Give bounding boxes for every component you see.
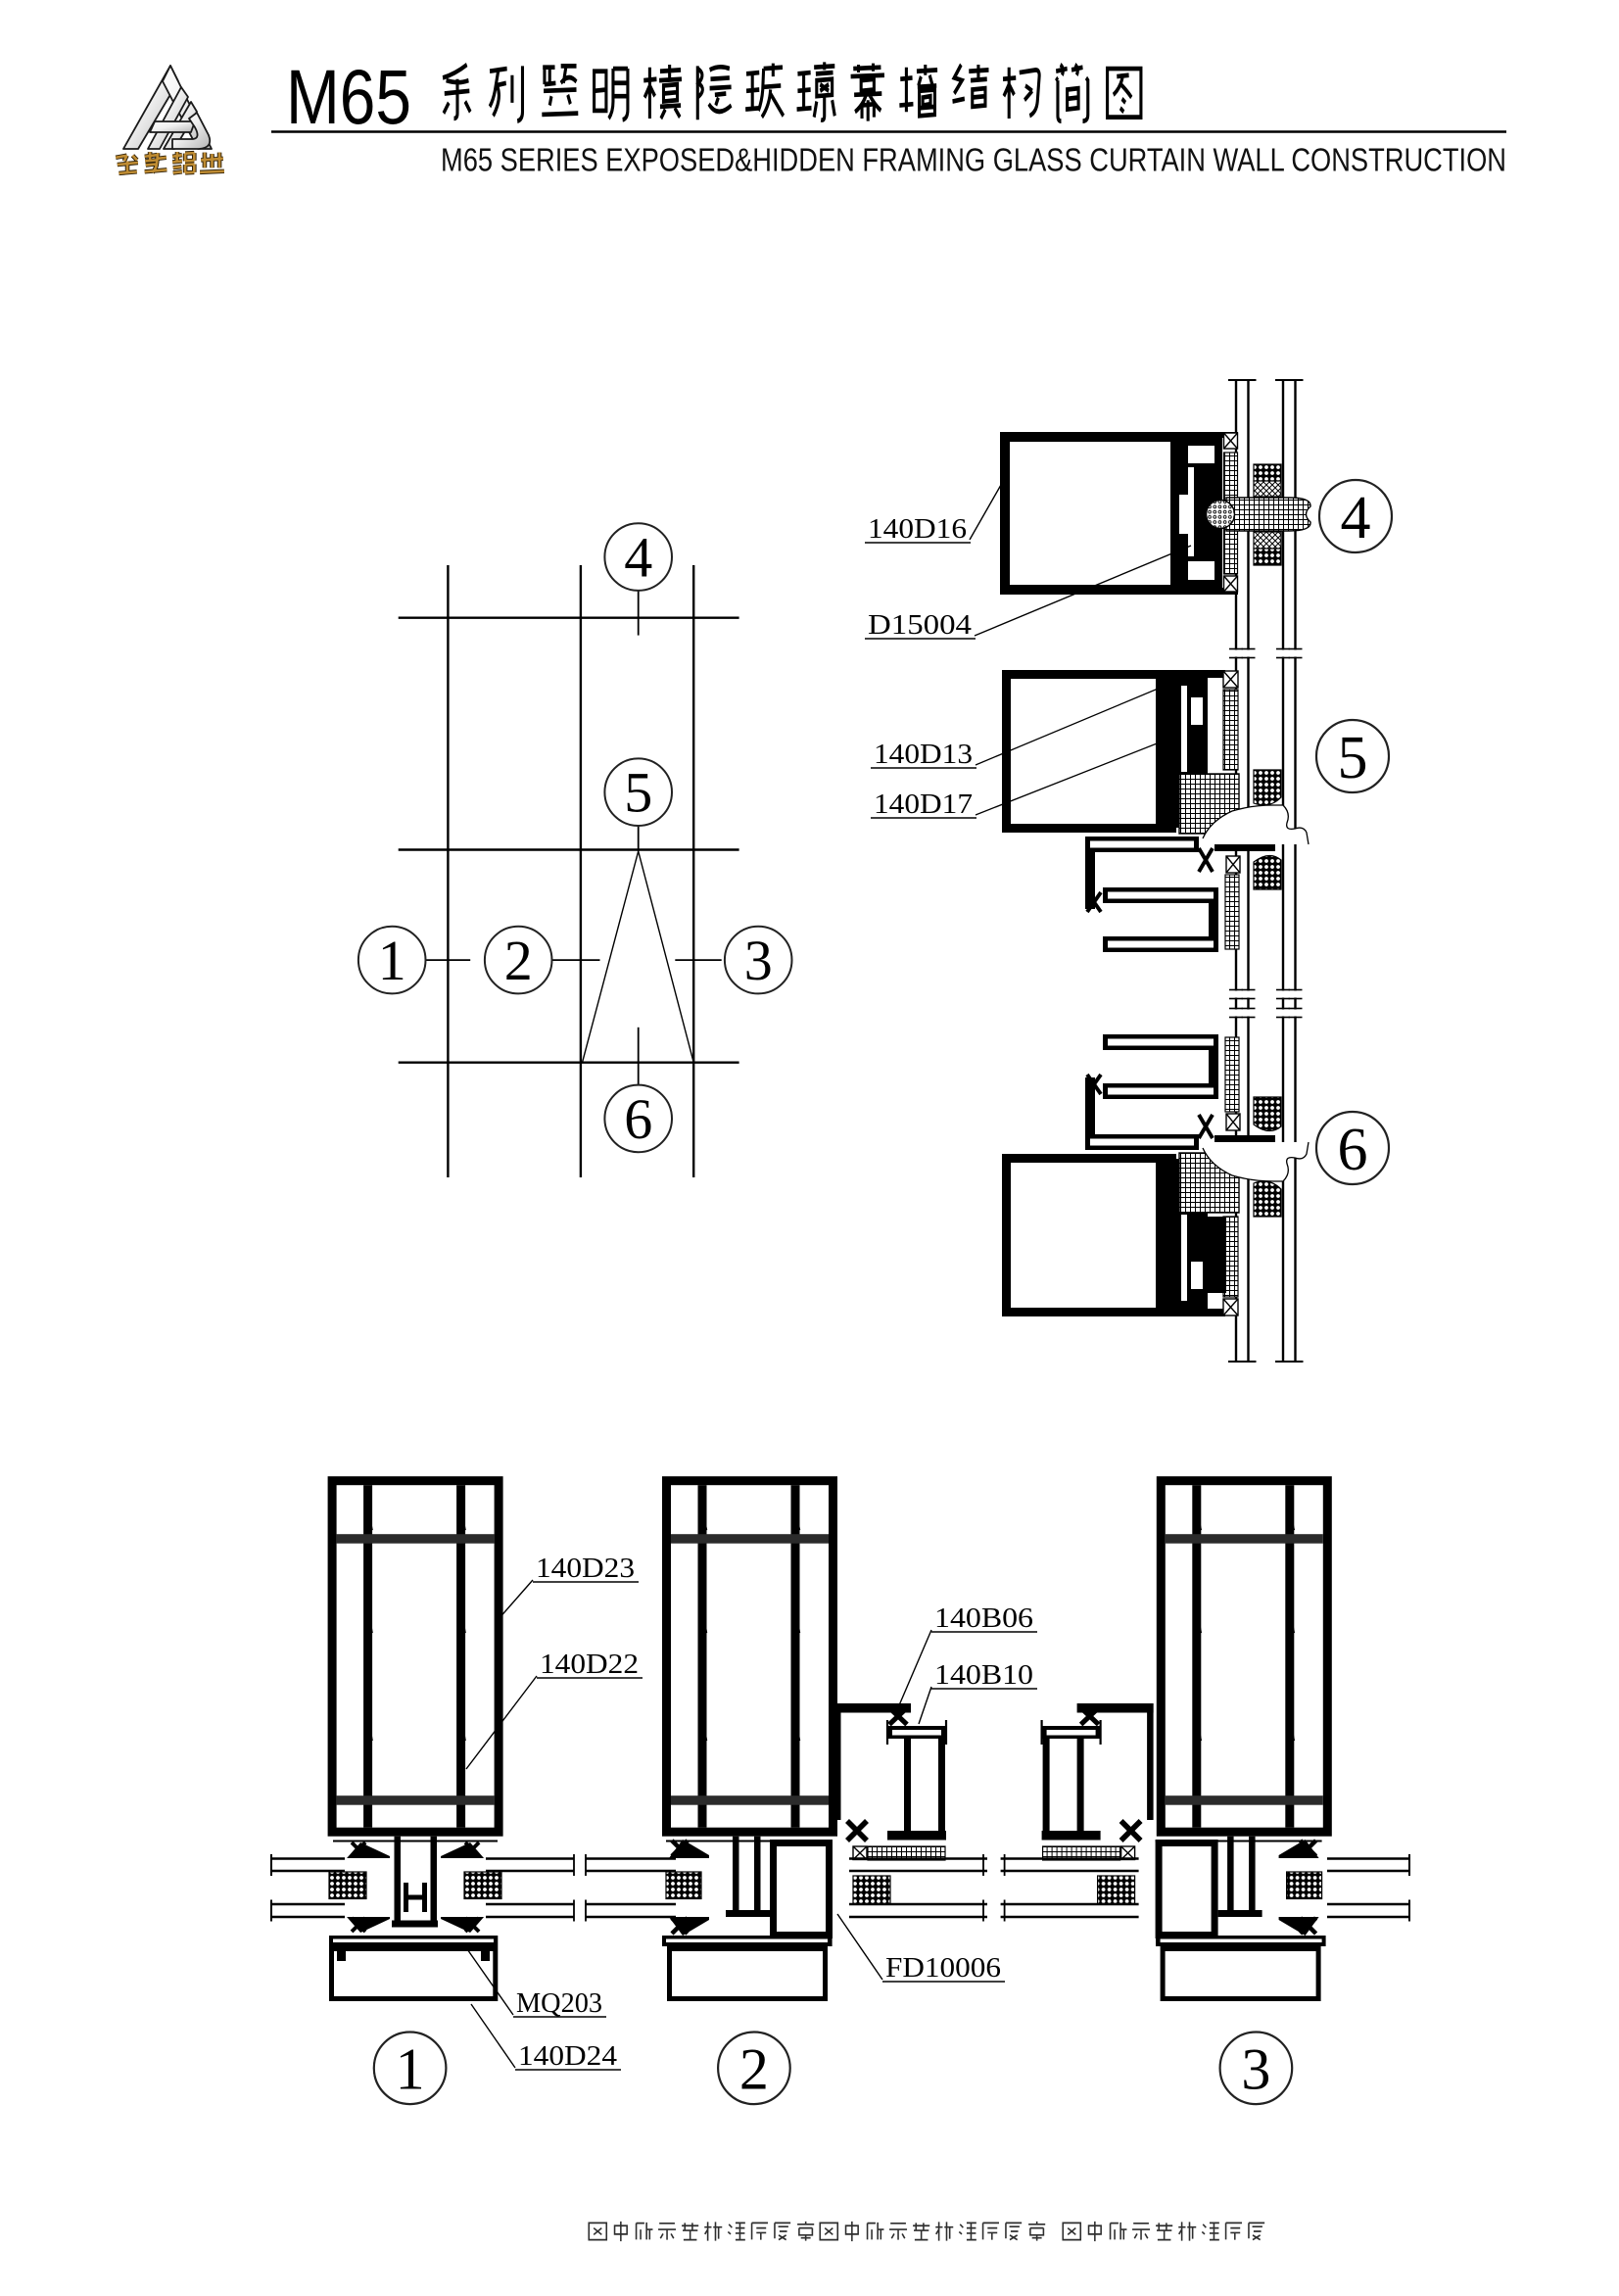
svg-text:140D16: 140D16 — [868, 513, 967, 545]
svg-text:140D24: 140D24 — [518, 2040, 618, 2072]
svg-text:D15004: D15004 — [868, 609, 973, 641]
svg-text:140B06: 140B06 — [934, 1602, 1033, 1634]
svg-text:140D17: 140D17 — [874, 789, 973, 820]
svg-text:3: 3 — [1241, 2036, 1270, 2101]
svg-text:6: 6 — [624, 1087, 652, 1151]
svg-text:5: 5 — [624, 761, 652, 825]
svg-text:MQ203: MQ203 — [516, 1987, 602, 2019]
svg-text:140D13: 140D13 — [874, 739, 973, 770]
svg-text:3: 3 — [744, 929, 773, 992]
svg-text:M65 SERIES EXPOSED&HIDDEN FRAM: M65 SERIES EXPOSED&HIDDEN FRAMING GLASS … — [441, 143, 1506, 179]
svg-text:140D23: 140D23 — [536, 1553, 635, 1584]
svg-text:6: 6 — [1338, 1117, 1368, 1183]
svg-text:FD10006: FD10006 — [885, 1952, 1001, 1984]
svg-text:1: 1 — [396, 2036, 425, 2101]
svg-text:1: 1 — [378, 929, 406, 992]
svg-text:140D22: 140D22 — [540, 1649, 639, 1680]
svg-text:4: 4 — [1341, 485, 1371, 551]
svg-text:5: 5 — [1338, 725, 1368, 791]
svg-text:2: 2 — [504, 929, 533, 992]
svg-text:4: 4 — [624, 526, 652, 590]
svg-text:M65: M65 — [286, 53, 411, 140]
svg-text:2: 2 — [739, 2036, 769, 2101]
svg-text:140B10: 140B10 — [934, 1659, 1033, 1691]
